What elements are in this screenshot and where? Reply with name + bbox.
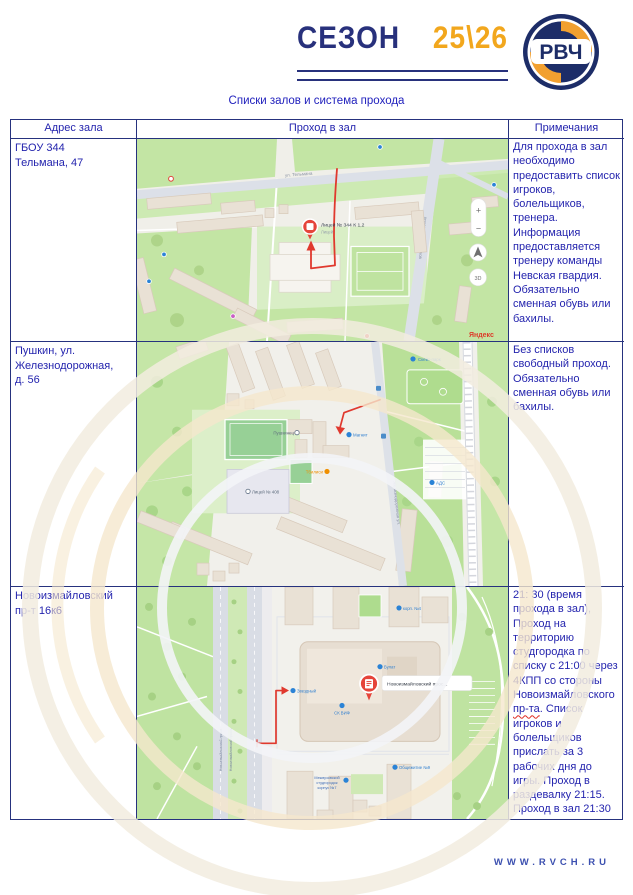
magnit-label: Магнит — [353, 433, 368, 438]
road-label-novoizmailovsky-2: Новоизмайловский просп. — [229, 728, 233, 771]
hall-label: Пушкинец — [273, 431, 294, 436]
bulat-icon — [377, 664, 382, 669]
address-novoizmailovsky: Новоизмайловский пр-т 16к6 — [11, 586, 136, 819]
bulat-label: Булат — [384, 665, 395, 670]
dorm-icon — [392, 765, 397, 770]
map-novoizmailovsky-image: Новоизмайловский просп. Новоизмайловский… — [137, 587, 508, 819]
pin-label: Лицей № 344 К 1,2 — [321, 222, 365, 229]
season-label: СЕЗОН — [297, 20, 400, 56]
ads-icon — [429, 480, 434, 485]
map-gbou344-image: ул. Тельмана просп. Большевиков — [137, 139, 508, 341]
zvezdny-icon — [290, 688, 295, 693]
document-subtitle: Списки залов и система прохода — [0, 95, 633, 107]
skatepark-icon — [410, 356, 415, 361]
school-label: Лицей № 408 — [252, 489, 280, 494]
notes-gbou344: Для прохода в зал необходимо предоставит… — [508, 138, 624, 341]
season-years: 25\26 — [433, 20, 508, 56]
zoom-in-button: + — [476, 206, 481, 216]
campus-label-line1: Межвузовский — [314, 776, 339, 780]
halls-table: Адрес зала Проход в зал Примечания ГБОУ … — [10, 119, 623, 820]
campus-label-line3: корпус №7 — [318, 786, 337, 790]
map-3d-button: 3D — [474, 276, 481, 282]
page-title: СЕЗОН 25\26 — [297, 22, 508, 54]
address-gbou344: ГБОУ 344 Тельмана, 47 — [11, 138, 136, 341]
road-label-novoizmailovsky-1: Новоизмайловский просп. — [219, 728, 223, 771]
yandex-logo: Яндекс — [469, 332, 494, 339]
map-novoizmailovsky: Новоизмайловский просп. Новоизмайловский… — [136, 586, 508, 819]
korp4-icon — [396, 605, 401, 610]
notes-misspelled-word: пр-та — [513, 703, 540, 715]
tbilisi-label: Тбилиси — [306, 469, 324, 474]
magnit-icon — [346, 432, 351, 437]
korp4-label: корп. №4 — [403, 606, 422, 611]
column-header-notes: Примечания — [508, 120, 624, 138]
map-pushkin-image: Железнодорожная ул. Скейт-парк Пушкинец … — [137, 342, 508, 586]
notes-text-before: 21: 30 (время прохода в зал), Проход на … — [513, 589, 618, 701]
tbilisi-icon — [324, 469, 329, 474]
sk-vif-icon — [339, 703, 344, 708]
rvch-logo-text: РВЧ — [539, 41, 582, 64]
zoom-out-button: − — [476, 224, 481, 234]
header-rule-top — [297, 70, 508, 72]
dorm-label: Общежитие №9 — [399, 765, 431, 770]
pin-sublabel: Лицей — [321, 230, 334, 235]
campus-label-line2: студгородок — [316, 781, 338, 785]
zvezdny-label: Звездный — [297, 689, 317, 694]
website-link[interactable]: WWW.RVCH.RU — [494, 857, 610, 868]
pin-label: Новоизмайловский прос... — [387, 681, 448, 688]
map-pushkin: Железнодорожная ул. Скейт-парк Пушкинец … — [136, 341, 508, 586]
rvch-logo-icon: РВЧ — [521, 12, 601, 92]
notes-novoizmailovsky: 21: 30 (время прохода в зал), Проход на … — [508, 586, 624, 819]
skatepark-label: Скейт-парк — [418, 357, 441, 362]
sk-vif-label: СК ВИФ — [334, 710, 350, 715]
ads-label: АДС — [436, 480, 445, 485]
poi-dot — [378, 145, 383, 150]
notes-pushkin: Без списков свободный проход. Обязательн… — [508, 341, 624, 586]
header-rule-bottom — [297, 79, 508, 81]
map-gbou344: ул. Тельмана просп. Большевиков — [136, 138, 508, 341]
notes-text-after: . Список игроков и болельщиков прислать … — [513, 703, 611, 815]
address-pushkin: Пушкин, ул. Железнодорожная, д. 56 — [11, 341, 136, 586]
column-header-address: Адрес зала — [11, 120, 136, 138]
school-icon — [246, 489, 250, 493]
hall-icon — [295, 430, 299, 434]
column-header-map: Проход в зал — [136, 120, 508, 138]
campus-icon — [343, 778, 348, 783]
